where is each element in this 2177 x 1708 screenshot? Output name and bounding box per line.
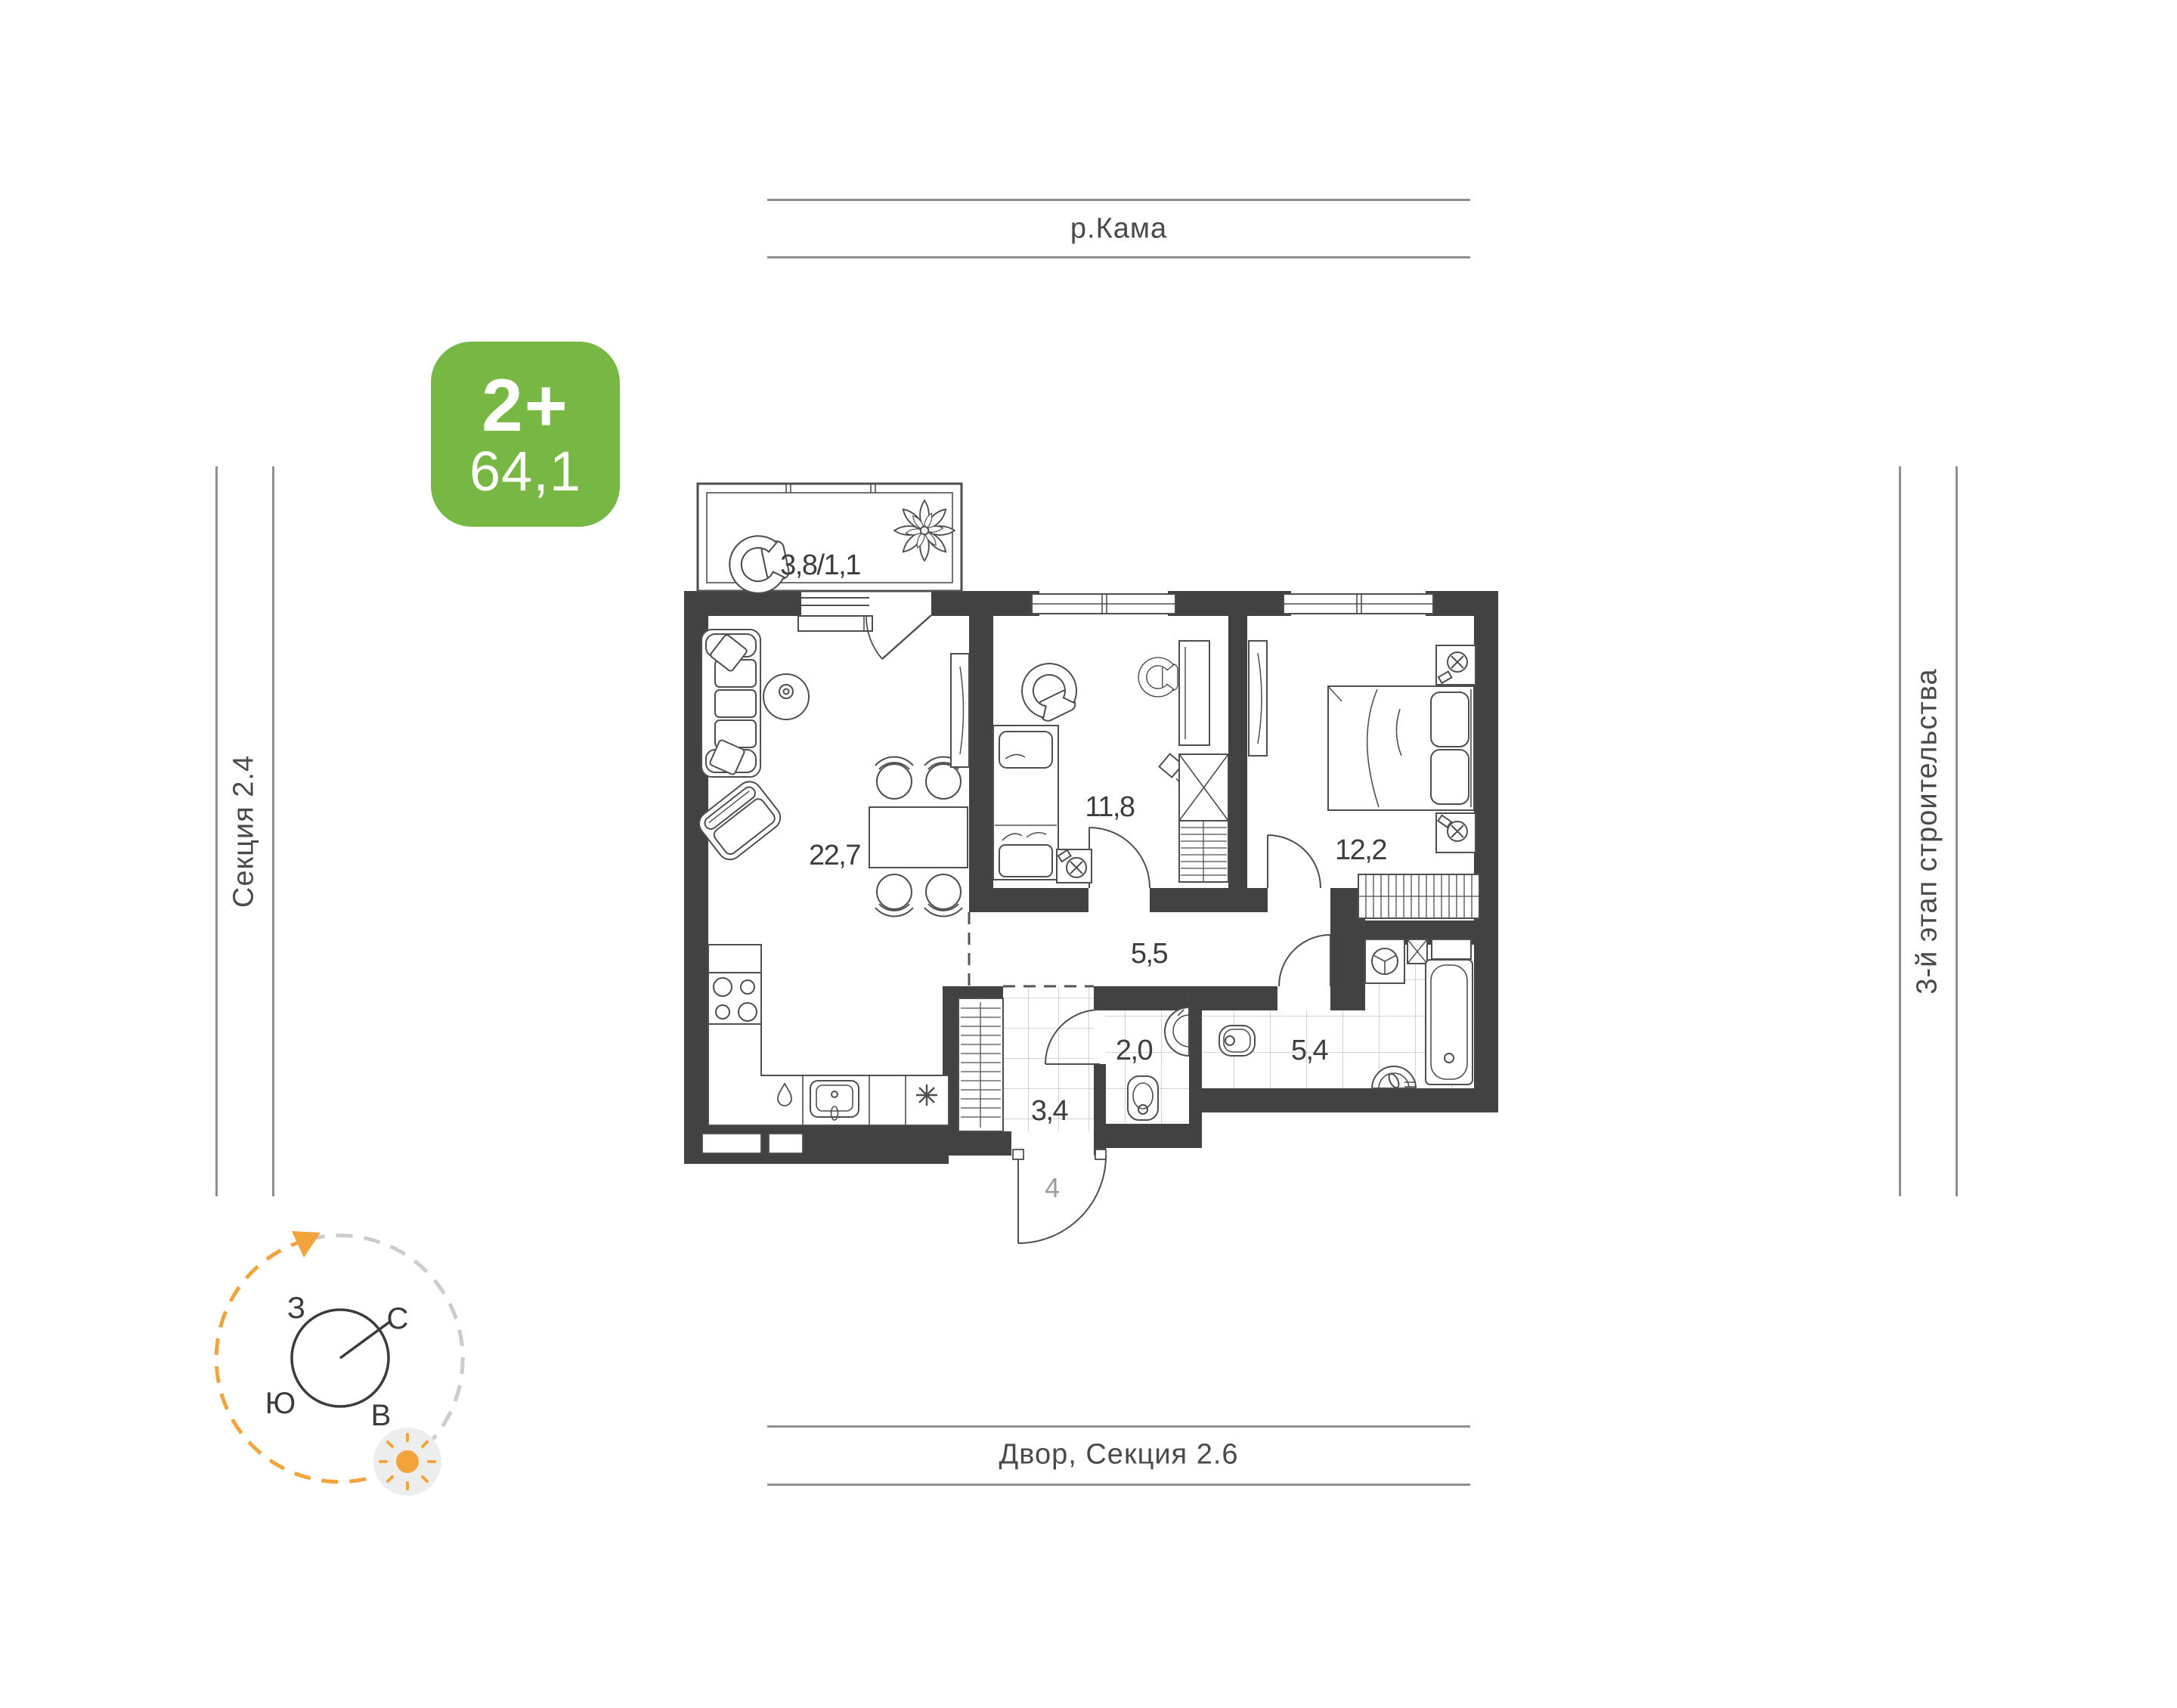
room-label-bedroom2: 12,2: [1335, 834, 1386, 866]
plant-icon: [894, 500, 955, 561]
room-label-corridor: 5,5: [1131, 938, 1168, 970]
wall-toilet-icon: [1219, 1026, 1255, 1056]
room-label-bathroom: 5,4: [1291, 1035, 1329, 1066]
bedroom2-furniture: [1249, 641, 1479, 918]
desk-icon: [1138, 641, 1209, 745]
bottom-wall-insets: [702, 1134, 803, 1153]
closet-icon: [958, 998, 1003, 1131]
bedroom2-nightstand-top-icon: [1436, 645, 1476, 685]
fridge-icon: [916, 1085, 937, 1106]
compass-icon: З С Ю В: [216, 1231, 463, 1496]
bath-shelf-icon: [1432, 939, 1471, 959]
bedroom2-mirror-icon: [1249, 641, 1267, 756]
shelving-icon: [1179, 821, 1228, 882]
mirror-icon: [951, 654, 969, 767]
kitchen-counter: [708, 945, 949, 1125]
double-bed-icon: [1328, 686, 1474, 810]
sofa-icon: [701, 630, 760, 777]
compass-south-label: Ю: [265, 1387, 296, 1420]
bathtub-icon: [1426, 960, 1472, 1085]
wc-toilet-icon: [1128, 1076, 1158, 1120]
entry-number-label: 4: [1045, 1172, 1060, 1203]
zone-dashed-line: [969, 912, 1094, 986]
room-label-balcony: 3,8/1,1: [780, 549, 860, 581]
compass-north-label: С: [387, 1302, 409, 1335]
kitchen-sink-icon: [810, 1081, 859, 1120]
sun-icon: [373, 1428, 441, 1496]
bedroom2-nightstand-bottom-icon: [1436, 813, 1476, 852]
room-label-bedroom1: 11,8: [1085, 791, 1135, 823]
bedroom1-nightstand-icon: [1057, 849, 1092, 883]
windows: [798, 594, 1433, 659]
bedroom1-armchair-icon: [1013, 654, 1085, 727]
single-bed-icon: [993, 726, 1058, 880]
water-heater-icon: [1407, 939, 1427, 964]
washing-machine-icon: [1365, 939, 1404, 983]
room-label-wc: 2,0: [1116, 1035, 1153, 1066]
bedroom1-furniture: [993, 641, 1228, 883]
wardrobe-icon: [1179, 754, 1228, 821]
compass-east-label: В: [371, 1399, 392, 1432]
floor-plan-canvas: 3,8/1,1 22,7 11,8 12,2 5,5 2,0 3,4 5,4 4…: [0, 0, 2177, 1708]
dining-table-icon: [869, 757, 968, 917]
room-label-hall: 3,4: [1031, 1095, 1069, 1127]
dresser-icon: [1358, 874, 1479, 918]
compass-west-label: З: [287, 1292, 305, 1325]
floor-lamp-icon: [763, 674, 809, 719]
room-label-living: 22,7: [809, 840, 860, 871]
